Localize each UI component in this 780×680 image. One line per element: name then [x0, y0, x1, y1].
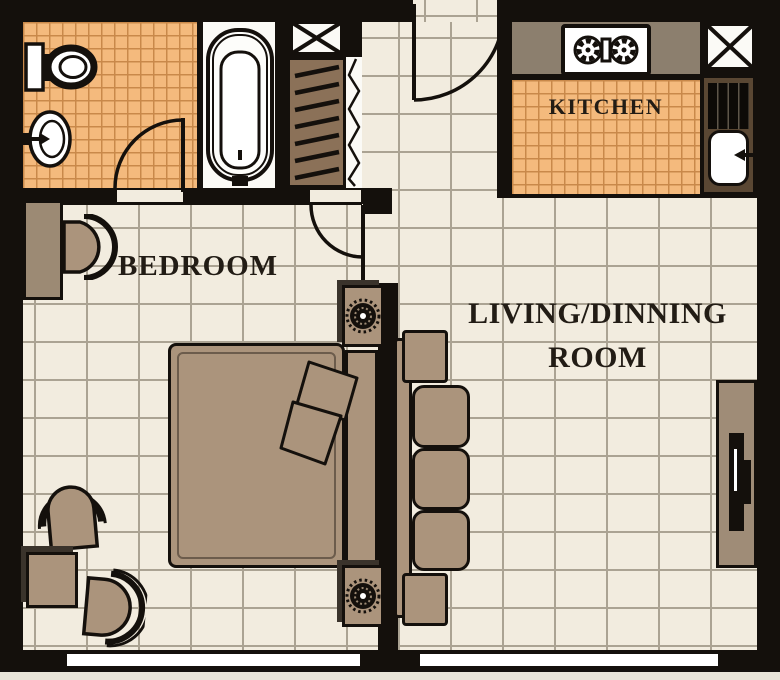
structural-column-icon [703, 21, 757, 72]
floor-plan: BEDROOM LIVING/DINNING ROOM KITCHEN [0, 0, 780, 680]
bathroom-door-icon [110, 116, 190, 194]
wall-top-right [497, 0, 780, 22]
living-room-label-line1: LIVING/DINNING [445, 292, 750, 336]
tub-step [232, 176, 248, 186]
folding-door-icon [346, 57, 362, 188]
bathtub-icon [204, 26, 276, 188]
nightstand-top [342, 285, 384, 347]
pillows-icon [277, 356, 365, 474]
sofa-armrest-bottom [402, 573, 448, 626]
toilet-tank [26, 44, 43, 90]
window-living [420, 654, 718, 666]
structural-column-icon [288, 19, 345, 57]
bedroom-label: BEDROOM [118, 250, 278, 283]
living-room-label-line2: ROOM [445, 336, 750, 380]
living-room-label: LIVING/DINNING ROOM [445, 292, 750, 380]
entry-door-icon [409, 4, 505, 106]
wash-basin-icon [22, 106, 74, 172]
side-table [26, 552, 78, 608]
window-bedroom [67, 654, 360, 666]
desk-chair-icon [58, 214, 118, 280]
wall-right [757, 0, 780, 672]
basin-tap [22, 133, 29, 145]
drainboard [708, 83, 749, 129]
closet-shelf-bars [290, 60, 343, 185]
tub-drain [238, 150, 242, 160]
lamp-icon [345, 288, 381, 344]
sofa-cushion [412, 385, 470, 448]
armchair-icon [30, 465, 113, 555]
nightstand-bottom [342, 565, 384, 627]
sofa-cushion [412, 510, 470, 571]
sofa-armrest-top [402, 330, 448, 383]
desk [23, 200, 63, 300]
toilet-icon [24, 36, 100, 100]
armchair-icon [75, 565, 150, 653]
wall-left [0, 0, 23, 672]
stove-cooktop-icon [561, 24, 651, 76]
kitchen-label: KITCHEN [512, 94, 700, 120]
lamp-icon [345, 568, 381, 624]
kitchen-sink-unit [702, 76, 755, 194]
sofa-cushion [412, 448, 470, 510]
wall-bath-tub-partition [197, 22, 203, 188]
faucet-icon [734, 146, 754, 164]
tv-screen-highlight [734, 449, 737, 491]
tv-bracket [742, 460, 751, 504]
wardrobe-closet [287, 57, 346, 188]
stove-center-panel [602, 39, 610, 61]
wall-tub-closet [275, 22, 287, 188]
wall-top-left [0, 0, 413, 22]
bedroom-door-icon [306, 201, 370, 291]
